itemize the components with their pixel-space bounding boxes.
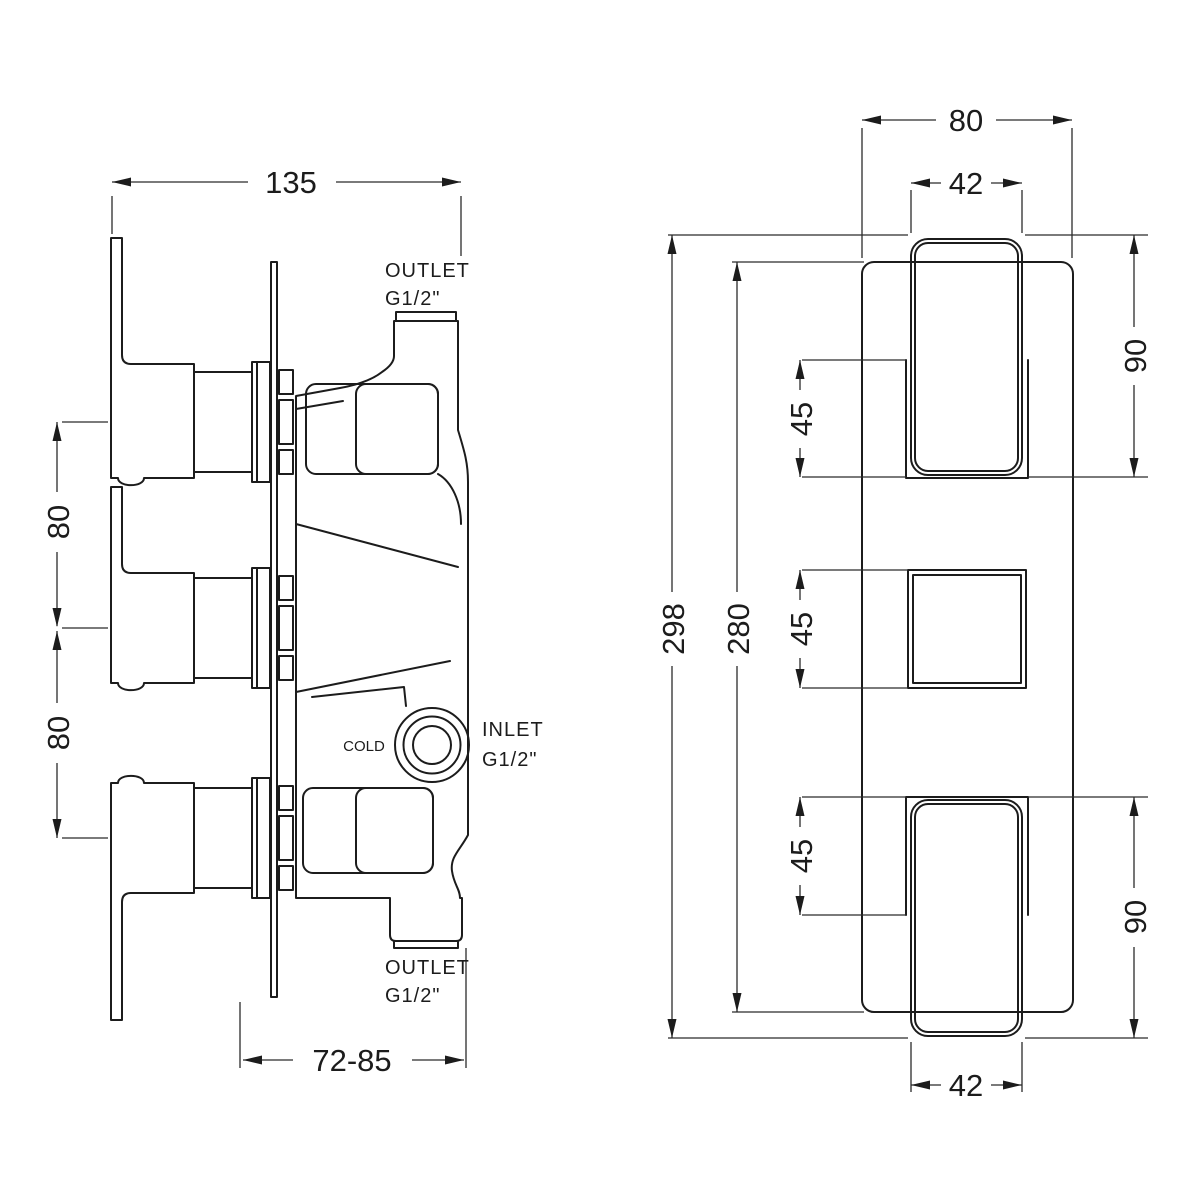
front-view: 80 42 298 280 45 45 45 90 90 42 [656, 103, 1153, 1103]
label-inlet-1: INLET [482, 719, 544, 741]
dim-handle-width-bottom-42: 42 [949, 1068, 983, 1103]
side-view: 135 80 80 72-85 OUTLET G1/2" COLD INLET … [41, 165, 544, 1078]
stem-middle [194, 578, 252, 678]
dim-overall-height-298: 298 [656, 603, 691, 655]
dim-plate-height-280: 280 [721, 603, 756, 655]
wall-plate-edge [271, 262, 277, 997]
cone-bottom-line [296, 661, 450, 692]
label-outlet-bottom-1: OUTLET [385, 957, 470, 979]
cartridge-face-bottom [303, 788, 433, 873]
lever-middle [111, 487, 194, 690]
outlet-top-cap [396, 312, 456, 321]
inlet-circle-outer [395, 708, 469, 782]
dim-pitch-lower-80: 80 [41, 716, 76, 750]
dim-handle-height-top-90: 90 [1118, 339, 1153, 373]
handle-bottom [911, 800, 1022, 1036]
dim-width-135: 135 [265, 165, 317, 200]
dim-cartridge-bottom-45: 45 [784, 839, 819, 873]
socket-top [906, 360, 1028, 478]
socket-bottom [906, 797, 1028, 915]
label-outlet-bottom-2: G1/2" [385, 985, 440, 1007]
outlet-bottom-cap [394, 941, 458, 948]
stem-top [194, 372, 252, 472]
label-inlet-2: G1/2" [482, 749, 537, 771]
flange-bottom [252, 778, 270, 898]
inlet-circle-inner [413, 726, 451, 764]
flange-middle [252, 568, 270, 688]
valve-body [296, 321, 468, 941]
label-outlet-top-2: G1/2" [385, 288, 440, 310]
dim-cartridge-top-45: 45 [784, 402, 819, 436]
technical-drawing: 135 80 80 72-85 OUTLET G1/2" COLD INLET … [0, 0, 1200, 1200]
back-plate [862, 262, 1073, 1012]
inlet-boss-line [312, 687, 406, 706]
cartridge-tabs-middle [279, 576, 293, 680]
dim-depth-72-85: 72-85 [312, 1043, 391, 1078]
cartridge-face-top [306, 384, 438, 474]
stem-bottom [194, 788, 252, 888]
label-cold: COLD [343, 738, 385, 755]
dim-plate-width-80: 80 [949, 103, 983, 138]
cartridge-tabs-top [279, 370, 293, 474]
lever-bottom [111, 776, 194, 1020]
valve-body-inner-line [296, 401, 343, 409]
dim-handle-width-top-42: 42 [949, 166, 983, 201]
handle-top [911, 239, 1022, 475]
cone-top-line [296, 524, 458, 567]
flange-top [252, 362, 270, 482]
dim-pitch-upper-80: 80 [41, 505, 76, 539]
lever-top [111, 238, 194, 485]
dim-handle-height-bottom-90: 90 [1118, 900, 1153, 934]
label-outlet-top-1: OUTLET [385, 260, 470, 282]
handle-middle [908, 570, 1026, 688]
dim-cartridge-middle-45: 45 [784, 612, 819, 646]
drawing-canvas: 135 80 80 72-85 OUTLET G1/2" COLD INLET … [0, 0, 1200, 1200]
cartridge-tabs-bottom [279, 786, 293, 890]
